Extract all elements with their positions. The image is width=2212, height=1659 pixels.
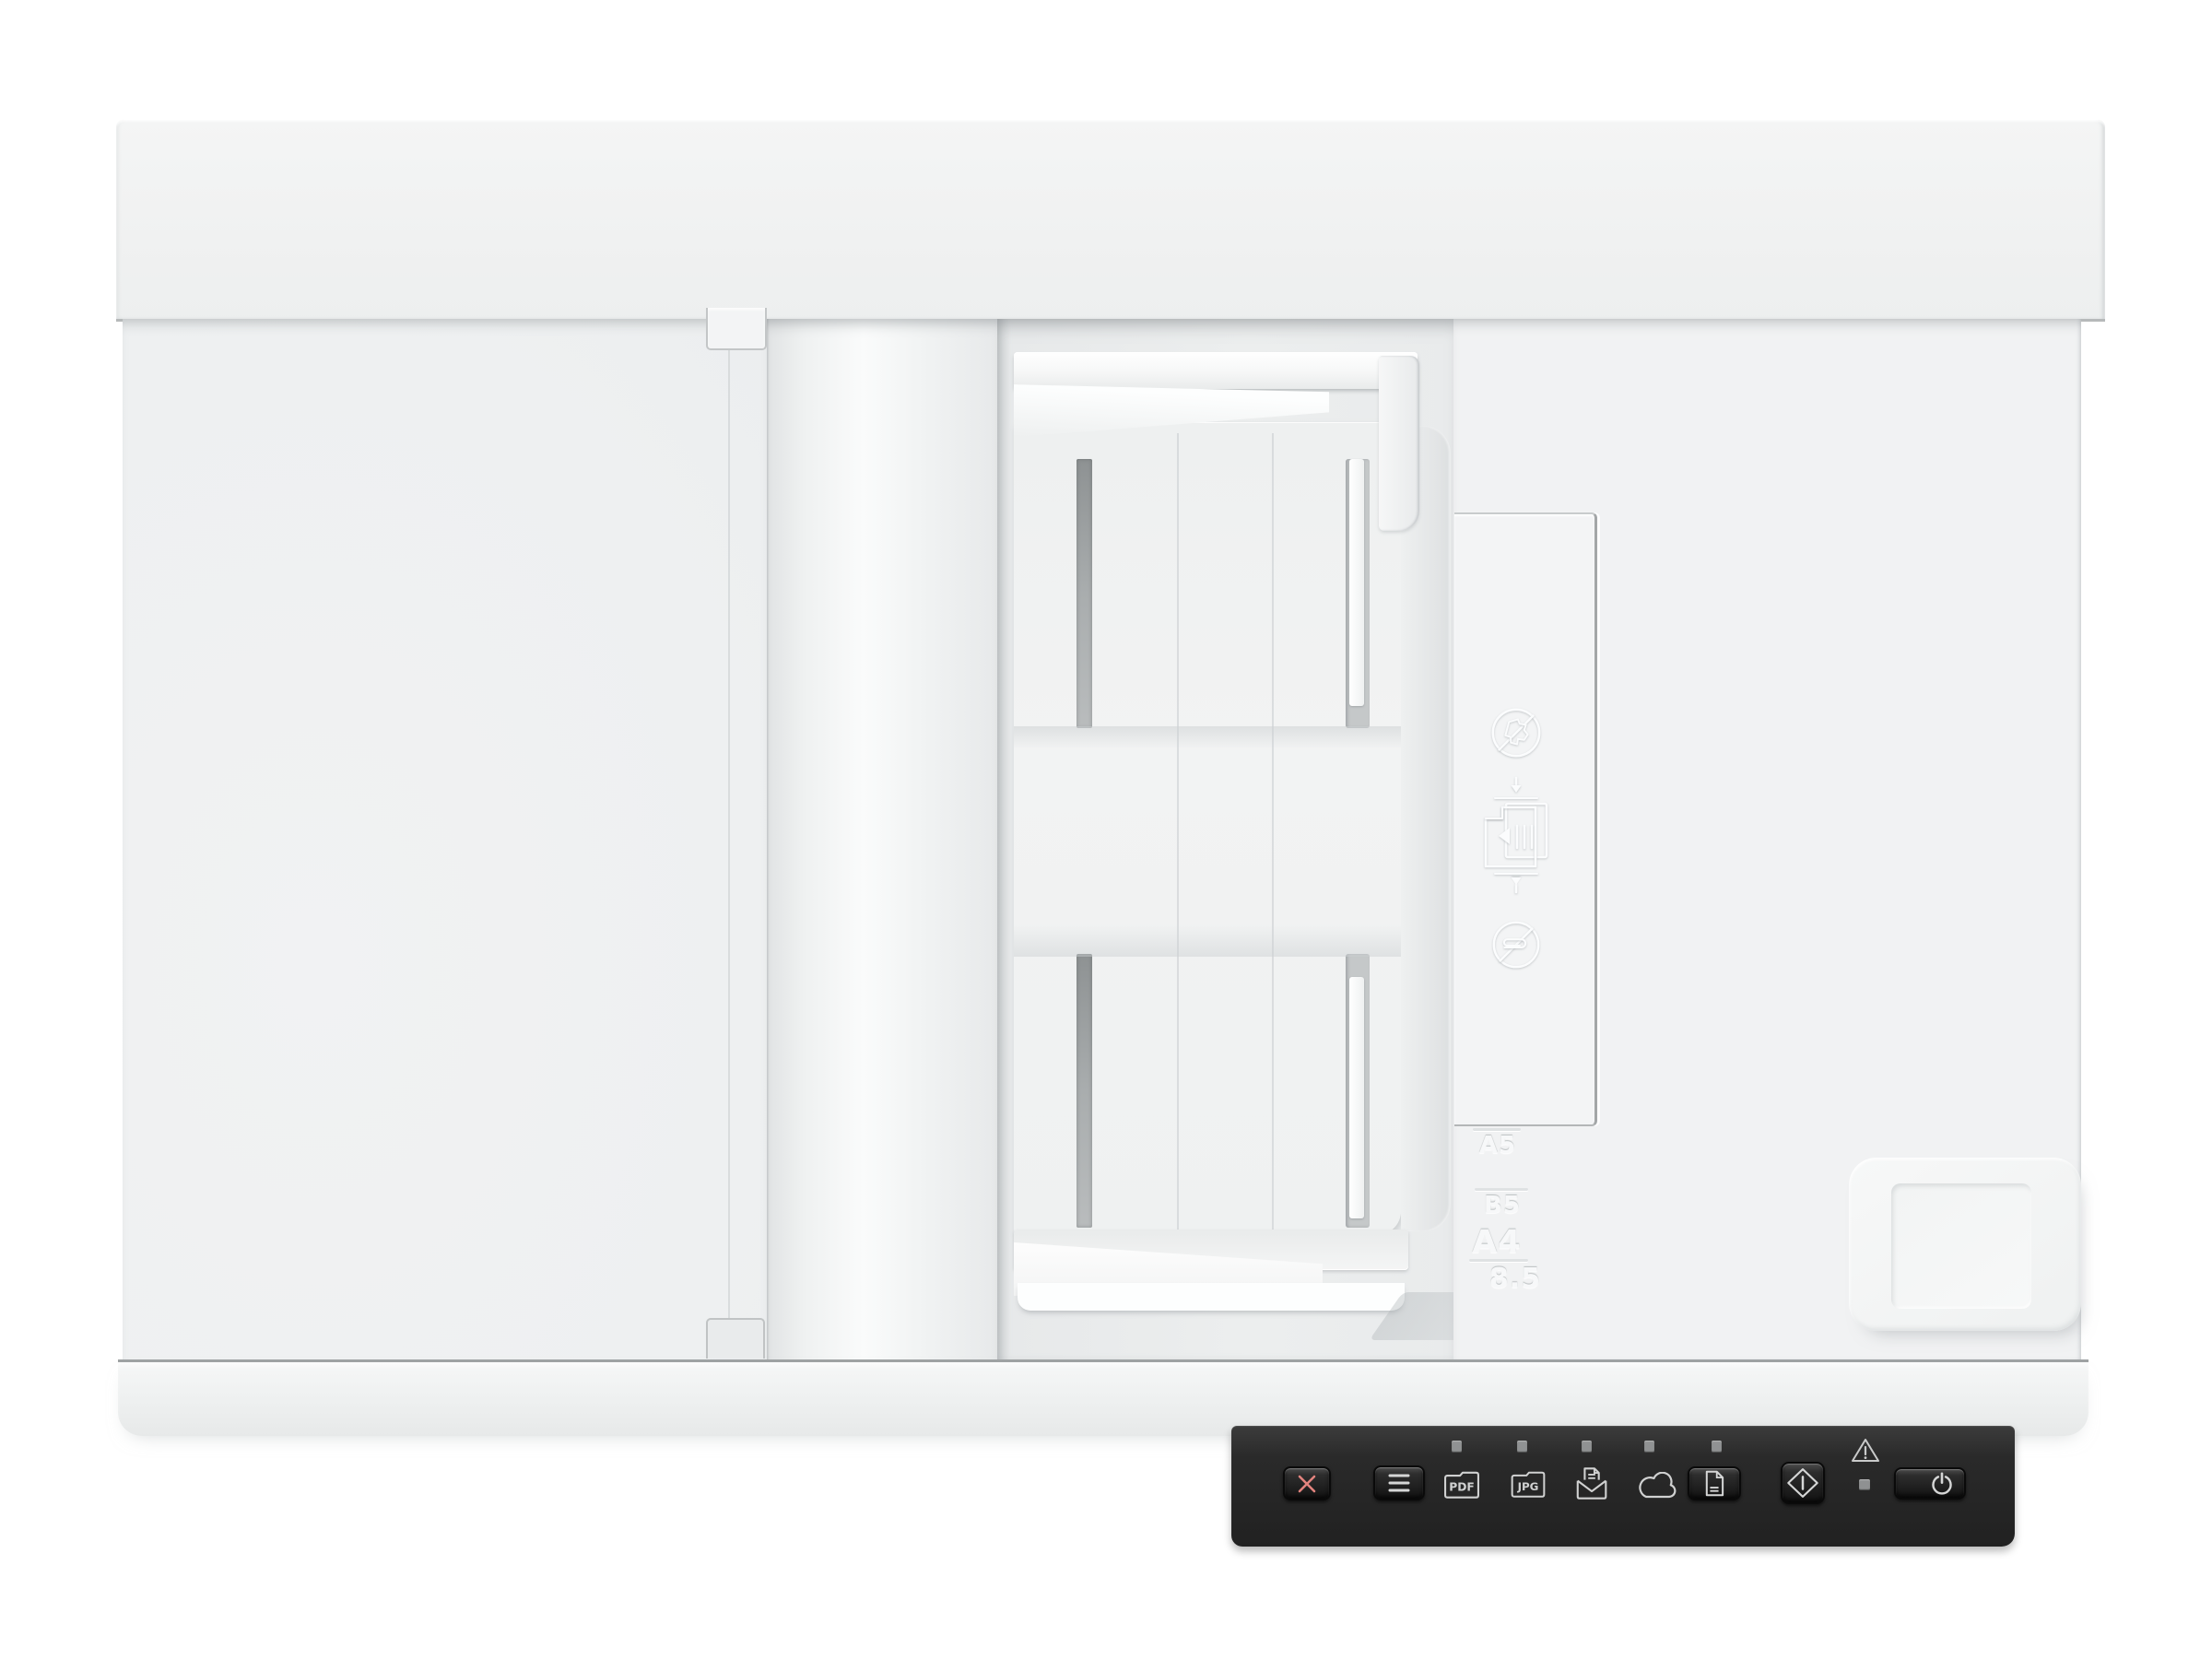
tray-fold-band: [1014, 726, 1401, 957]
tray-bottom-strip: [1018, 1283, 1405, 1311]
scanner-product-photo: A5 B5 A4 8.5 PDF: [0, 0, 2212, 1659]
no-paperclips-icon: [1489, 918, 1543, 971]
led-pdf: [1452, 1441, 1462, 1453]
power-button[interactable]: [1894, 1467, 1966, 1500]
pdf-label: PDF: [1449, 1481, 1475, 1494]
menu-icon: [1385, 1471, 1413, 1495]
jpg-folder-icon: JPG: [1509, 1469, 1547, 1500]
control-panel: PDF JPG: [1231, 1426, 2015, 1547]
document-icon: [1702, 1469, 1726, 1498]
led-cloud: [1644, 1441, 1654, 1453]
size-tick: [1469, 1259, 1528, 1262]
guide-slot-lower-left: [1077, 954, 1092, 1228]
start-scan-button[interactable]: [1781, 1462, 1825, 1504]
embossed-pad-inner: [1891, 1183, 2031, 1309]
paper-guide-top[interactable]: [1014, 352, 1418, 389]
size-label-b5: B5: [1477, 1192, 1528, 1219]
tray-bracket: [1379, 356, 1419, 531]
led-status: [1859, 1479, 1870, 1490]
adf-tray-right-wall: [1401, 426, 1451, 1231]
scan-to-cloud-icon: [1635, 1472, 1681, 1500]
menu-button[interactable]: [1373, 1465, 1425, 1500]
size-label-a4: A4: [1471, 1224, 1523, 1261]
power-icon: [1929, 1471, 1955, 1497]
pdf-folder-icon: PDF: [1441, 1469, 1482, 1500]
no-damaged-paper-icon: [1488, 704, 1545, 761]
lid-seam: [728, 324, 730, 1355]
scanner-top-band: [116, 120, 2105, 319]
cancel-x-icon: [1295, 1472, 1319, 1496]
led-email: [1582, 1441, 1592, 1453]
cancel-button[interactable]: [1283, 1466, 1331, 1500]
scanner-base: [118, 1359, 2088, 1436]
warning-icon: [1851, 1437, 1880, 1464]
document-button[interactable]: [1688, 1466, 1741, 1500]
hinge-notch-bottom: [706, 1318, 765, 1359]
flatbed-lid: [123, 319, 767, 1359]
start-scan-icon: [1784, 1465, 1821, 1500]
guide-rod-lower: [1349, 977, 1364, 1218]
size-label-85: 8.5: [1488, 1263, 1543, 1295]
lid-hinge-strip: [767, 319, 997, 1359]
size-label-a5: A5: [1475, 1132, 1521, 1159]
size-tick: [1475, 1188, 1528, 1191]
guide-rod-upper: [1349, 459, 1364, 706]
size-tick: [1473, 1128, 1521, 1131]
load-paper-arrows-icon: [1475, 774, 1558, 896]
led-jpg: [1517, 1441, 1527, 1453]
hinge-notch-top: [706, 308, 767, 350]
scan-to-email-icon: [1573, 1465, 1612, 1502]
led-document: [1712, 1441, 1722, 1453]
guide-slot-upper-left: [1077, 459, 1092, 728]
jpg-label: JPG: [1517, 1480, 1539, 1493]
